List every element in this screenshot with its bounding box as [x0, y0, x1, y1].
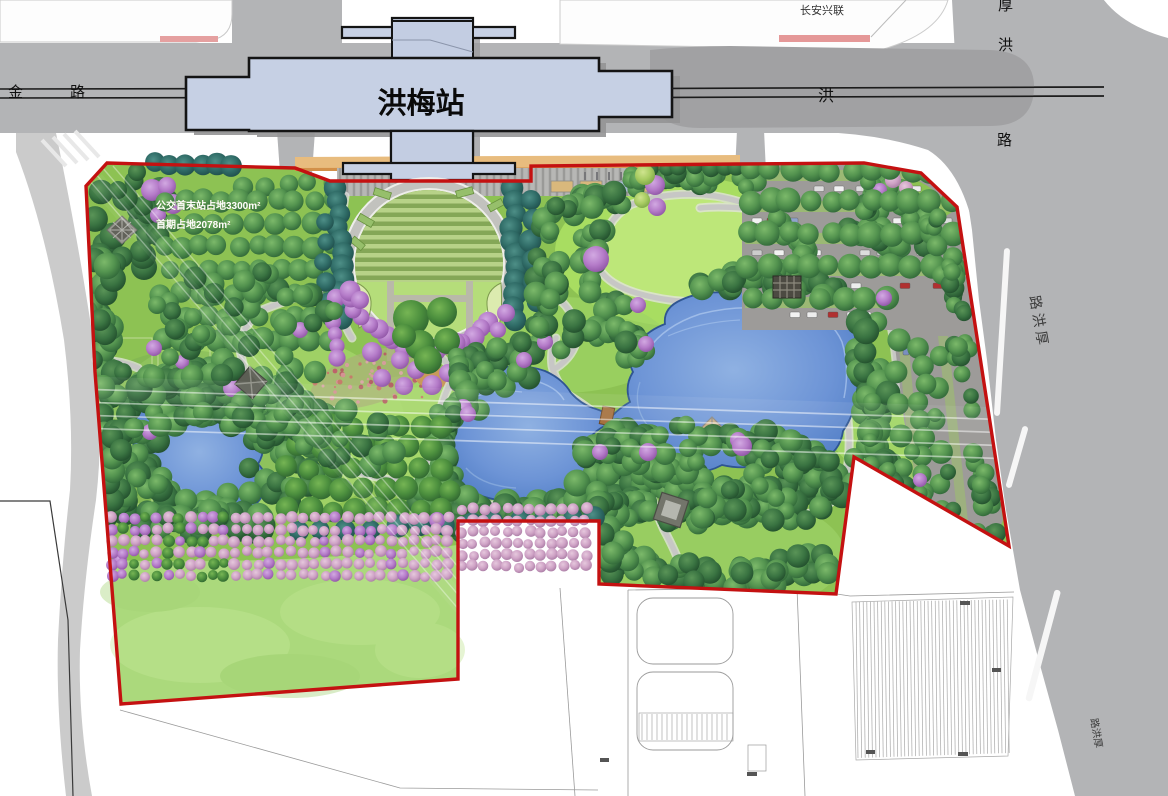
svg-text:路: 路 [70, 84, 85, 101]
svg-text:公交首末站占地3300m²: 公交首末站占地3300m² [156, 199, 261, 212]
svg-text:厚: 厚 [998, 0, 1013, 14]
svg-text:洪: 洪 [818, 87, 834, 105]
svg-text:长安兴联: 长安兴联 [800, 3, 844, 17]
svg-text:金: 金 [8, 84, 23, 101]
svg-text:首期占地2078m²: 首期占地2078m² [156, 218, 231, 231]
svg-text:路: 路 [997, 132, 1012, 149]
svg-text:洪梅站: 洪梅站 [377, 87, 464, 120]
